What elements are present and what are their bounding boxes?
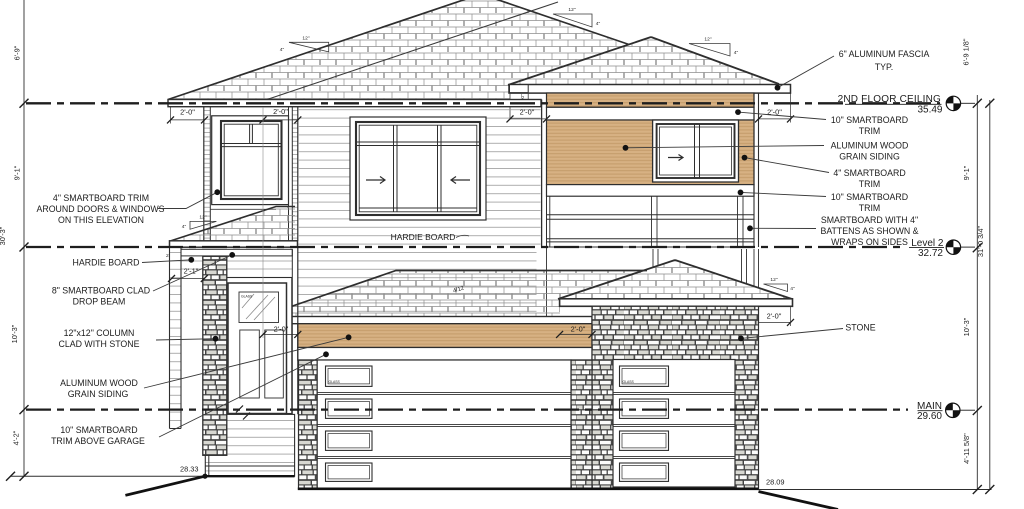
svg-text:4": 4": [734, 50, 739, 56]
svg-text:2'-0": 2'-0": [274, 324, 289, 333]
svg-text:TRIM ABOVE GARAGE: TRIM ABOVE GARAGE: [51, 436, 145, 446]
svg-text:TRIM: TRIM: [859, 126, 881, 136]
svg-text:4'-11 5/8": 4'-11 5/8": [962, 433, 971, 464]
svg-text:10'-3": 10'-3": [962, 317, 971, 336]
svg-text:4" SMARTBOARD TRIM: 4" SMARTBOARD TRIM: [53, 193, 149, 203]
svg-text:HARDIE BOARD: HARDIE BOARD: [73, 258, 140, 268]
svg-text:28.09: 28.09: [766, 478, 785, 487]
svg-text:GRAIN SIDING: GRAIN SIDING: [839, 152, 900, 162]
svg-text:35.49: 35.49: [917, 104, 942, 115]
svg-text:4": 4": [596, 21, 601, 27]
svg-text:12"x12" COLUMN: 12"x12" COLUMN: [64, 328, 135, 338]
svg-text:31'-0 3/4": 31'-0 3/4": [976, 226, 985, 258]
svg-text:ON THIS ELEVATION: ON THIS ELEVATION: [58, 215, 144, 225]
svg-text:GLASS: GLASS: [623, 380, 635, 384]
svg-text:2'-0": 2'-0": [273, 107, 288, 116]
svg-text:6" ALUMINUM FASCIA: 6" ALUMINUM FASCIA: [839, 49, 930, 59]
svg-text:8" SMARTBOARD CLAD: 8" SMARTBOARD CLAD: [52, 286, 150, 296]
svg-text:SMARTBOARD WITH 4": SMARTBOARD WITH 4": [821, 215, 918, 225]
svg-text:AROUND DOORS & WINDOWS: AROUND DOORS & WINDOWS: [36, 204, 164, 214]
svg-text:6'-9": 6'-9": [13, 45, 22, 60]
svg-text:9'-1": 9'-1": [962, 165, 971, 180]
svg-text:10'-3": 10'-3": [10, 324, 19, 343]
svg-text:4": 4": [280, 47, 285, 53]
svg-text:9'-1": 9'-1": [13, 165, 22, 180]
svg-text:2'-0": 2'-0": [571, 324, 586, 333]
svg-text:12": 12": [302, 36, 309, 42]
svg-text:DROP BEAM: DROP BEAM: [73, 297, 126, 307]
svg-text:GRAIN SIDING: GRAIN SIDING: [68, 389, 129, 399]
svg-text:4" SMARTBOARD: 4" SMARTBOARD: [833, 168, 905, 178]
svg-text:STONE: STONE: [845, 323, 875, 333]
svg-text:TRIM: TRIM: [859, 203, 881, 213]
svg-text:BATTENS AS SHOWN &: BATTENS AS SHOWN &: [820, 226, 918, 236]
svg-text:2'-0": 2'-0": [520, 107, 535, 116]
svg-text:10" SMARTBOARD: 10" SMARTBOARD: [831, 115, 908, 125]
svg-text:12": 12": [568, 7, 575, 13]
svg-text:28.33: 28.33: [180, 465, 199, 474]
svg-text:ALUMINUM WOOD: ALUMINUM WOOD: [831, 141, 909, 151]
svg-text:2ND FLOOR CEILING: 2ND FLOOR CEILING: [838, 94, 941, 105]
svg-text:6'-9 1/8": 6'-9 1/8": [962, 38, 971, 65]
svg-text:ALUMINUM WOOD: ALUMINUM WOOD: [60, 378, 138, 388]
svg-text:HARDIE BOARD: HARDIE BOARD: [391, 232, 456, 242]
svg-text:TYP.: TYP.: [875, 62, 893, 72]
svg-text:12": 12": [704, 37, 711, 43]
svg-text:2'-0": 2'-0": [180, 107, 195, 116]
svg-text:WRAPS ON SIDES: WRAPS ON SIDES: [831, 237, 908, 247]
svg-text:29.60: 29.60: [917, 411, 942, 422]
svg-text:12": 12": [199, 215, 206, 221]
svg-text:CLAD WITH STONE: CLAD WITH STONE: [59, 339, 140, 349]
svg-text:30'-3": 30'-3": [0, 226, 7, 245]
svg-text:4": 4": [790, 286, 795, 292]
svg-text:TRIM: TRIM: [859, 179, 881, 189]
svg-text:4": 4": [182, 224, 187, 230]
svg-text:GLASS: GLASS: [241, 295, 253, 299]
svg-text:32.72: 32.72: [918, 248, 943, 259]
svg-text:GLASS: GLASS: [329, 380, 341, 384]
svg-text:2'-0": 2'-0": [767, 311, 782, 320]
svg-text:10" SMARTBOARD: 10" SMARTBOARD: [60, 425, 137, 435]
svg-text:12": 12": [770, 277, 777, 283]
svg-text:10" SMARTBOARD: 10" SMARTBOARD: [831, 192, 908, 202]
svg-text:4'-2": 4'-2": [12, 430, 21, 445]
